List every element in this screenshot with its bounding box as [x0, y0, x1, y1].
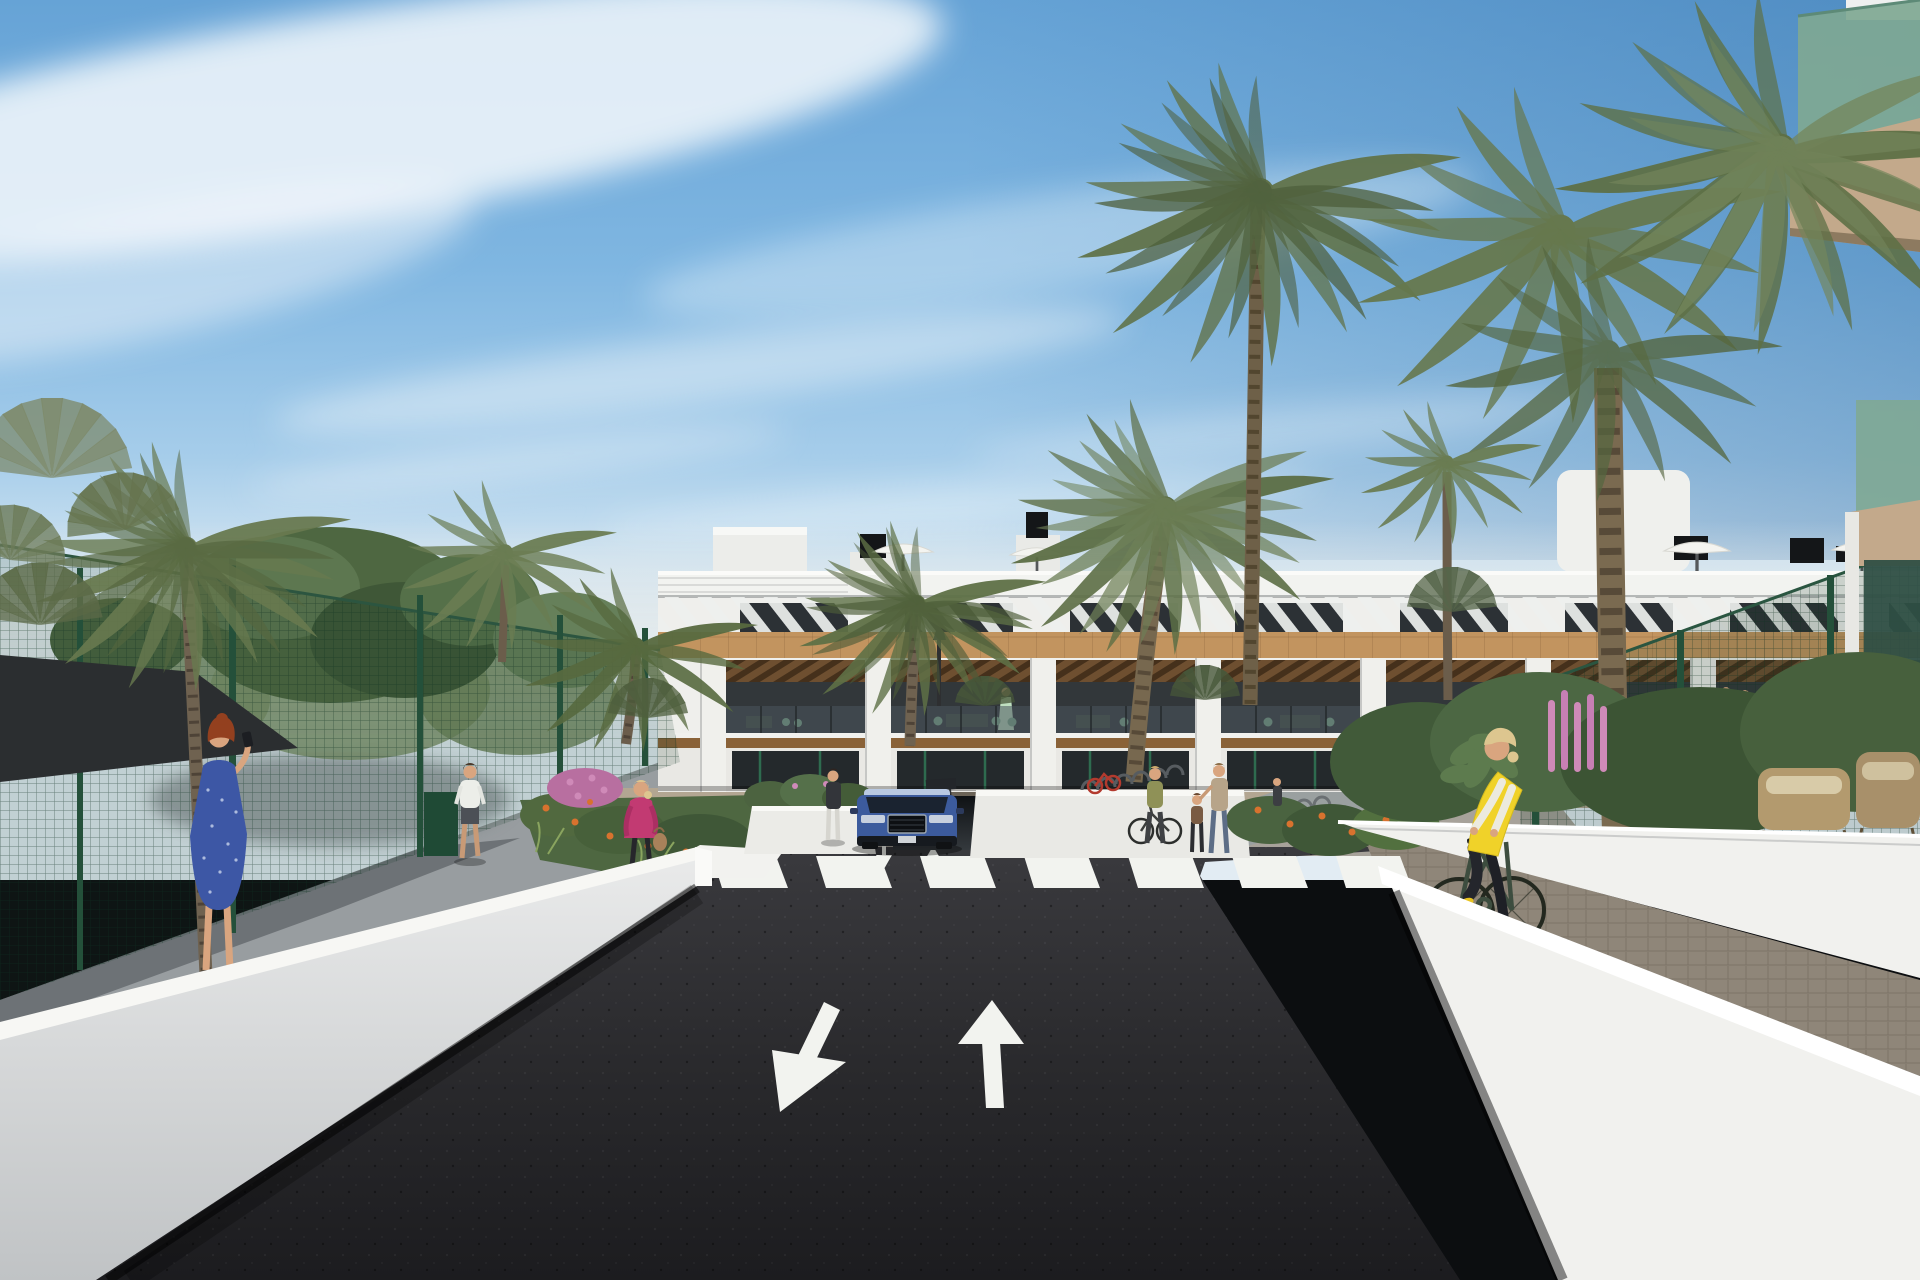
headlight-right — [929, 815, 953, 823]
scene-render — [0, 0, 1920, 1280]
entry-gate — [424, 792, 458, 856]
handbag — [653, 833, 667, 851]
wheel-right — [936, 842, 952, 849]
parapet-louvers — [658, 575, 848, 595]
pink-shrub — [547, 768, 623, 808]
blue-suv — [850, 789, 964, 856]
wall-end-cap — [695, 847, 712, 886]
mirror-left — [850, 808, 858, 814]
glass-balustrade-mid — [1856, 400, 1920, 518]
wheel-left — [862, 842, 878, 849]
headlight-left — [861, 815, 885, 823]
mirror-right — [956, 808, 964, 814]
right-band-wall — [970, 790, 1250, 858]
license-plate — [898, 836, 916, 843]
bulkhead-cap — [713, 527, 807, 535]
render-canvas — [0, 0, 1920, 1280]
windshield — [866, 797, 948, 813]
distant-pedestrian — [1273, 778, 1282, 806]
center-planter — [744, 774, 876, 854]
